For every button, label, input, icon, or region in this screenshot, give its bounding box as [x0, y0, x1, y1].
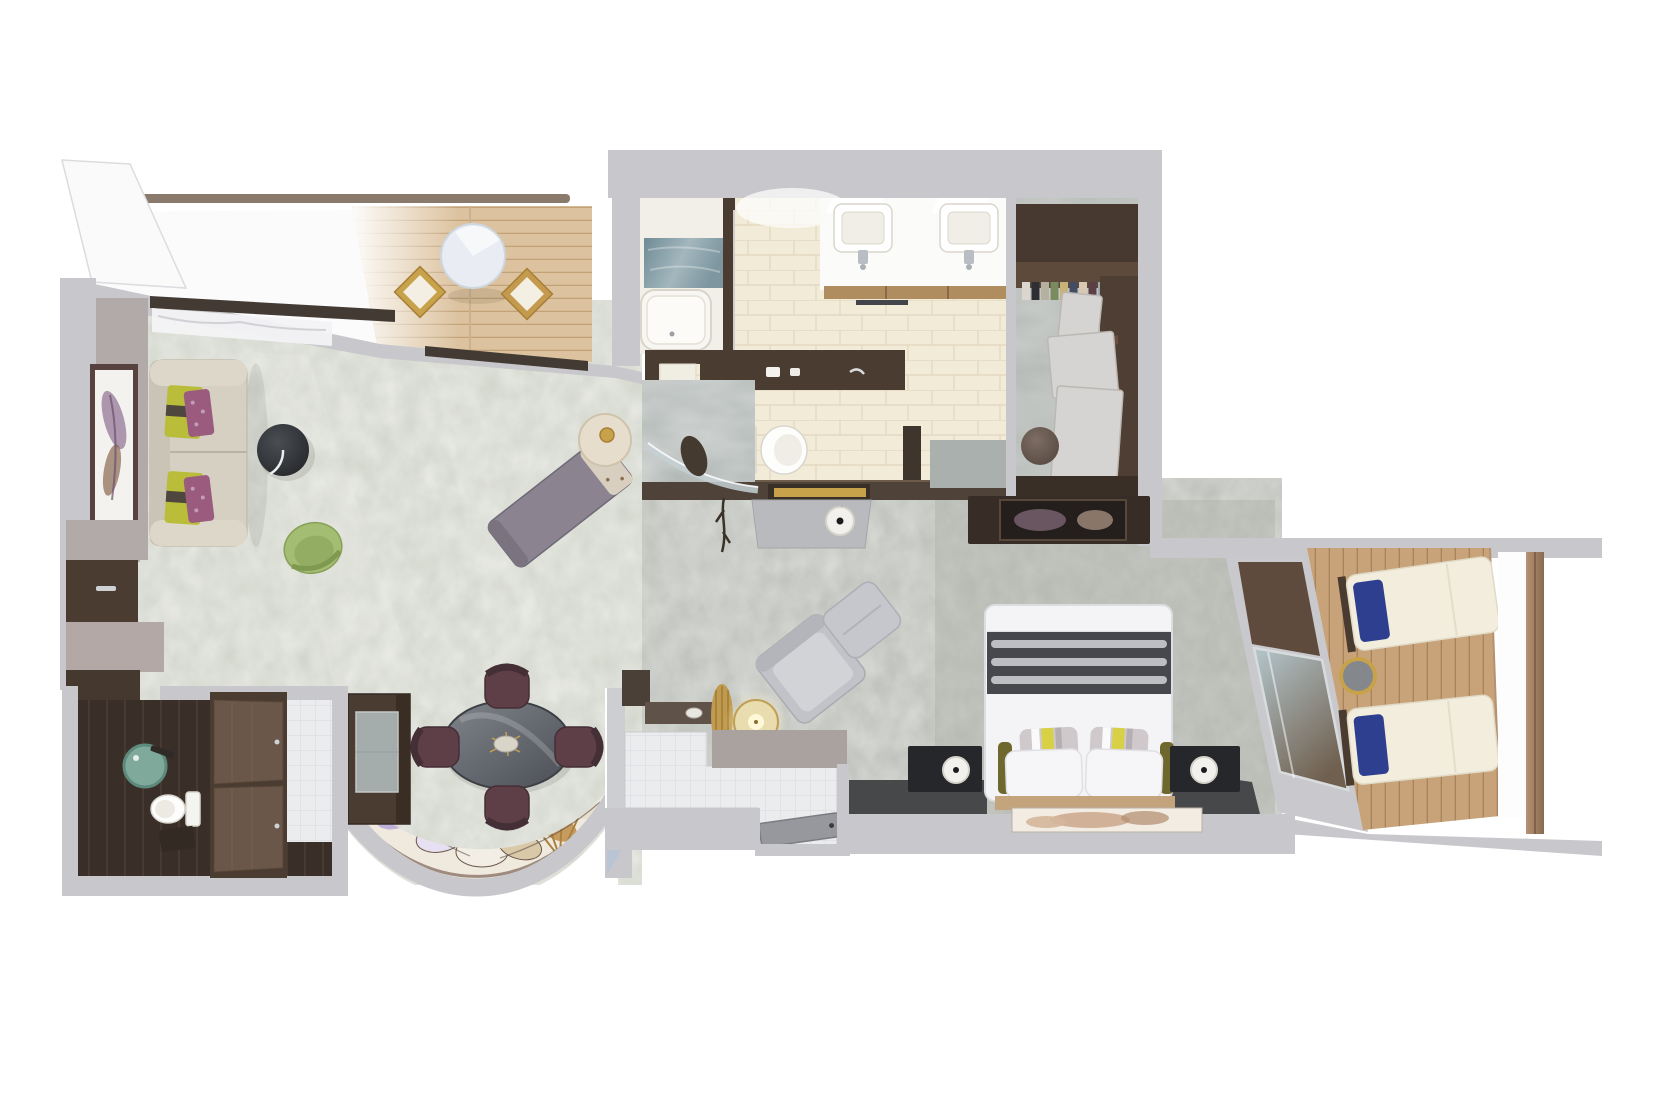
bathroom-top-wall [608, 150, 1162, 198]
foyer-cabinet [622, 670, 650, 706]
wardrobe-door [214, 700, 283, 784]
gold-sill [774, 488, 866, 497]
console-handle [96, 586, 116, 591]
veranda-side-table [1341, 659, 1375, 693]
dining-chair [555, 727, 600, 767]
pillow [183, 389, 214, 438]
walk-in-closet [1016, 198, 1162, 546]
block-left-wall [62, 686, 78, 896]
runner-stripe [991, 676, 1167, 684]
dining-chair [485, 786, 529, 827]
foyer-console [712, 730, 847, 768]
nightstand-left [908, 746, 982, 792]
sofa-arm [150, 360, 247, 386]
dining-chair [414, 727, 459, 767]
wc-top-wall [645, 350, 905, 364]
white-pillow [1085, 749, 1163, 800]
block-right-wall [332, 700, 348, 880]
pillow-plum [183, 475, 214, 524]
bathtub-drain [670, 332, 675, 337]
marble-shower-wall [644, 238, 723, 288]
closet-door-open [1051, 386, 1123, 484]
faucet-knob [966, 264, 972, 270]
hall-wardrobe [210, 692, 287, 878]
gold-table-lamp [600, 428, 614, 442]
faucet [964, 250, 974, 264]
centerpiece-bowl [494, 736, 518, 752]
closet-top-cabinet [1016, 204, 1138, 270]
block-bottom-wall [62, 876, 348, 896]
basin-glint [133, 755, 139, 761]
sink-basin [842, 212, 884, 244]
artwork-floral [1121, 811, 1169, 825]
table-shadow [448, 288, 508, 304]
lamp-finial [754, 720, 758, 724]
toilet-seat [774, 434, 802, 466]
counter-basin [686, 708, 702, 718]
dining-chair [485, 667, 529, 708]
console-darkwood [66, 560, 138, 624]
wardrobe-door [214, 786, 283, 872]
nightstand-right [1170, 746, 1240, 792]
sofa [150, 360, 268, 547]
double-vanity [820, 198, 1008, 305]
lamp-center [953, 767, 959, 773]
towel-bar [856, 300, 908, 305]
lamp-center [1201, 767, 1207, 773]
closet-threshold [930, 440, 1006, 488]
closet-pouf [1021, 427, 1059, 465]
framed-artwork [90, 364, 138, 526]
dark-mat [159, 826, 196, 853]
bathroom-left-wall [612, 198, 640, 366]
door-handle [275, 824, 280, 829]
door-handle [275, 740, 280, 745]
closet-left-wall [1006, 198, 1016, 498]
foyer-counter [645, 702, 713, 724]
shower-room [640, 198, 736, 354]
sun-lounger [1338, 694, 1499, 786]
king-bed [985, 605, 1202, 832]
foyer-right-wall [837, 764, 849, 852]
wc-counter-item [766, 367, 780, 377]
artwork-floral [1026, 816, 1066, 828]
balcony-railing [112, 194, 570, 203]
powder-toilet [151, 792, 200, 826]
vanity-drawers [824, 286, 1008, 299]
console-panel [66, 622, 164, 672]
hall-tile [287, 700, 332, 842]
lamp-center [837, 518, 844, 525]
floor-plan-canvas [0, 0, 1680, 1120]
wc-door [903, 426, 921, 488]
sink-basin [948, 212, 990, 244]
runner-stripe [991, 658, 1167, 666]
bathtub-basin [647, 296, 705, 344]
toilet-tank [186, 792, 200, 826]
runner-stripe [991, 640, 1167, 648]
pillow-plum [183, 389, 214, 438]
navy-pillow [1353, 714, 1389, 777]
vestibule-bottom-wall [755, 844, 850, 856]
foyer-bottom-wall [605, 808, 760, 850]
art-mat [95, 370, 133, 520]
console-panel [66, 520, 140, 562]
white-pillow [1005, 749, 1083, 800]
wc-counter-item [790, 368, 800, 376]
pillow [183, 475, 214, 524]
toilet-seat [155, 800, 175, 818]
faucet [858, 250, 868, 264]
hall-dark-floor [287, 842, 332, 876]
powder-room-block [62, 686, 348, 896]
deck-margin [1498, 552, 1526, 818]
closet-bottom-cabinet [1016, 476, 1138, 498]
bathroom-threshold [642, 380, 758, 490]
floor-plan-page [0, 0, 1680, 1120]
mirror-reflection [1014, 509, 1066, 531]
faucet-knob [860, 264, 866, 270]
bar-cabinet [348, 694, 410, 824]
mirror-reflection [1077, 510, 1113, 530]
